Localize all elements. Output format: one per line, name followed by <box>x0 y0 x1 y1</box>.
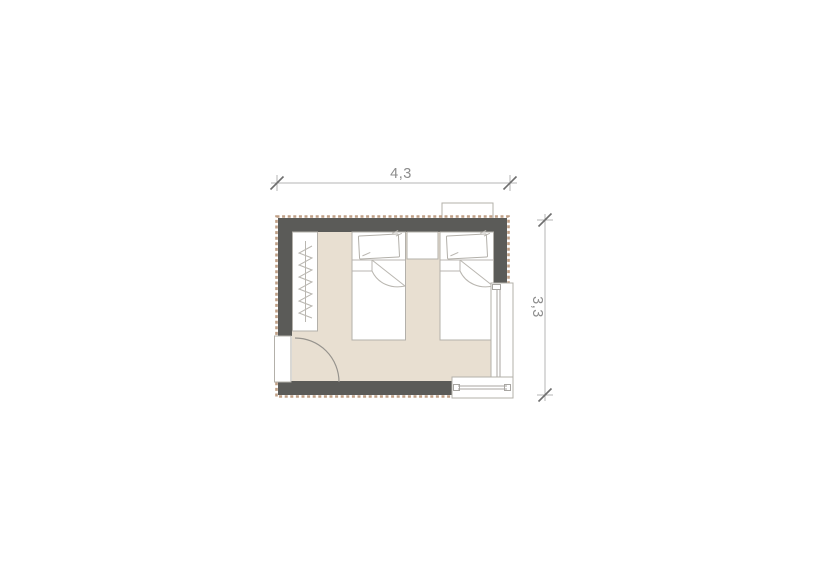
nightstand <box>407 232 438 259</box>
dimension-right: 3,3 <box>529 214 553 402</box>
bed-right <box>440 230 494 340</box>
dimension-top: 4,3 <box>271 166 518 191</box>
bed-left <box>352 230 406 340</box>
floor-plan-sheet: 4,3 3,3 <box>0 0 827 583</box>
dimension-width-label: 4,3 <box>390 166 412 182</box>
dimension-height-label: 3,3 <box>529 296 545 318</box>
window-bottom <box>452 377 513 398</box>
door-leaf <box>275 336 292 382</box>
floor-plan-drawing: 4,3 3,3 <box>0 0 827 583</box>
wardrobe <box>293 232 318 331</box>
